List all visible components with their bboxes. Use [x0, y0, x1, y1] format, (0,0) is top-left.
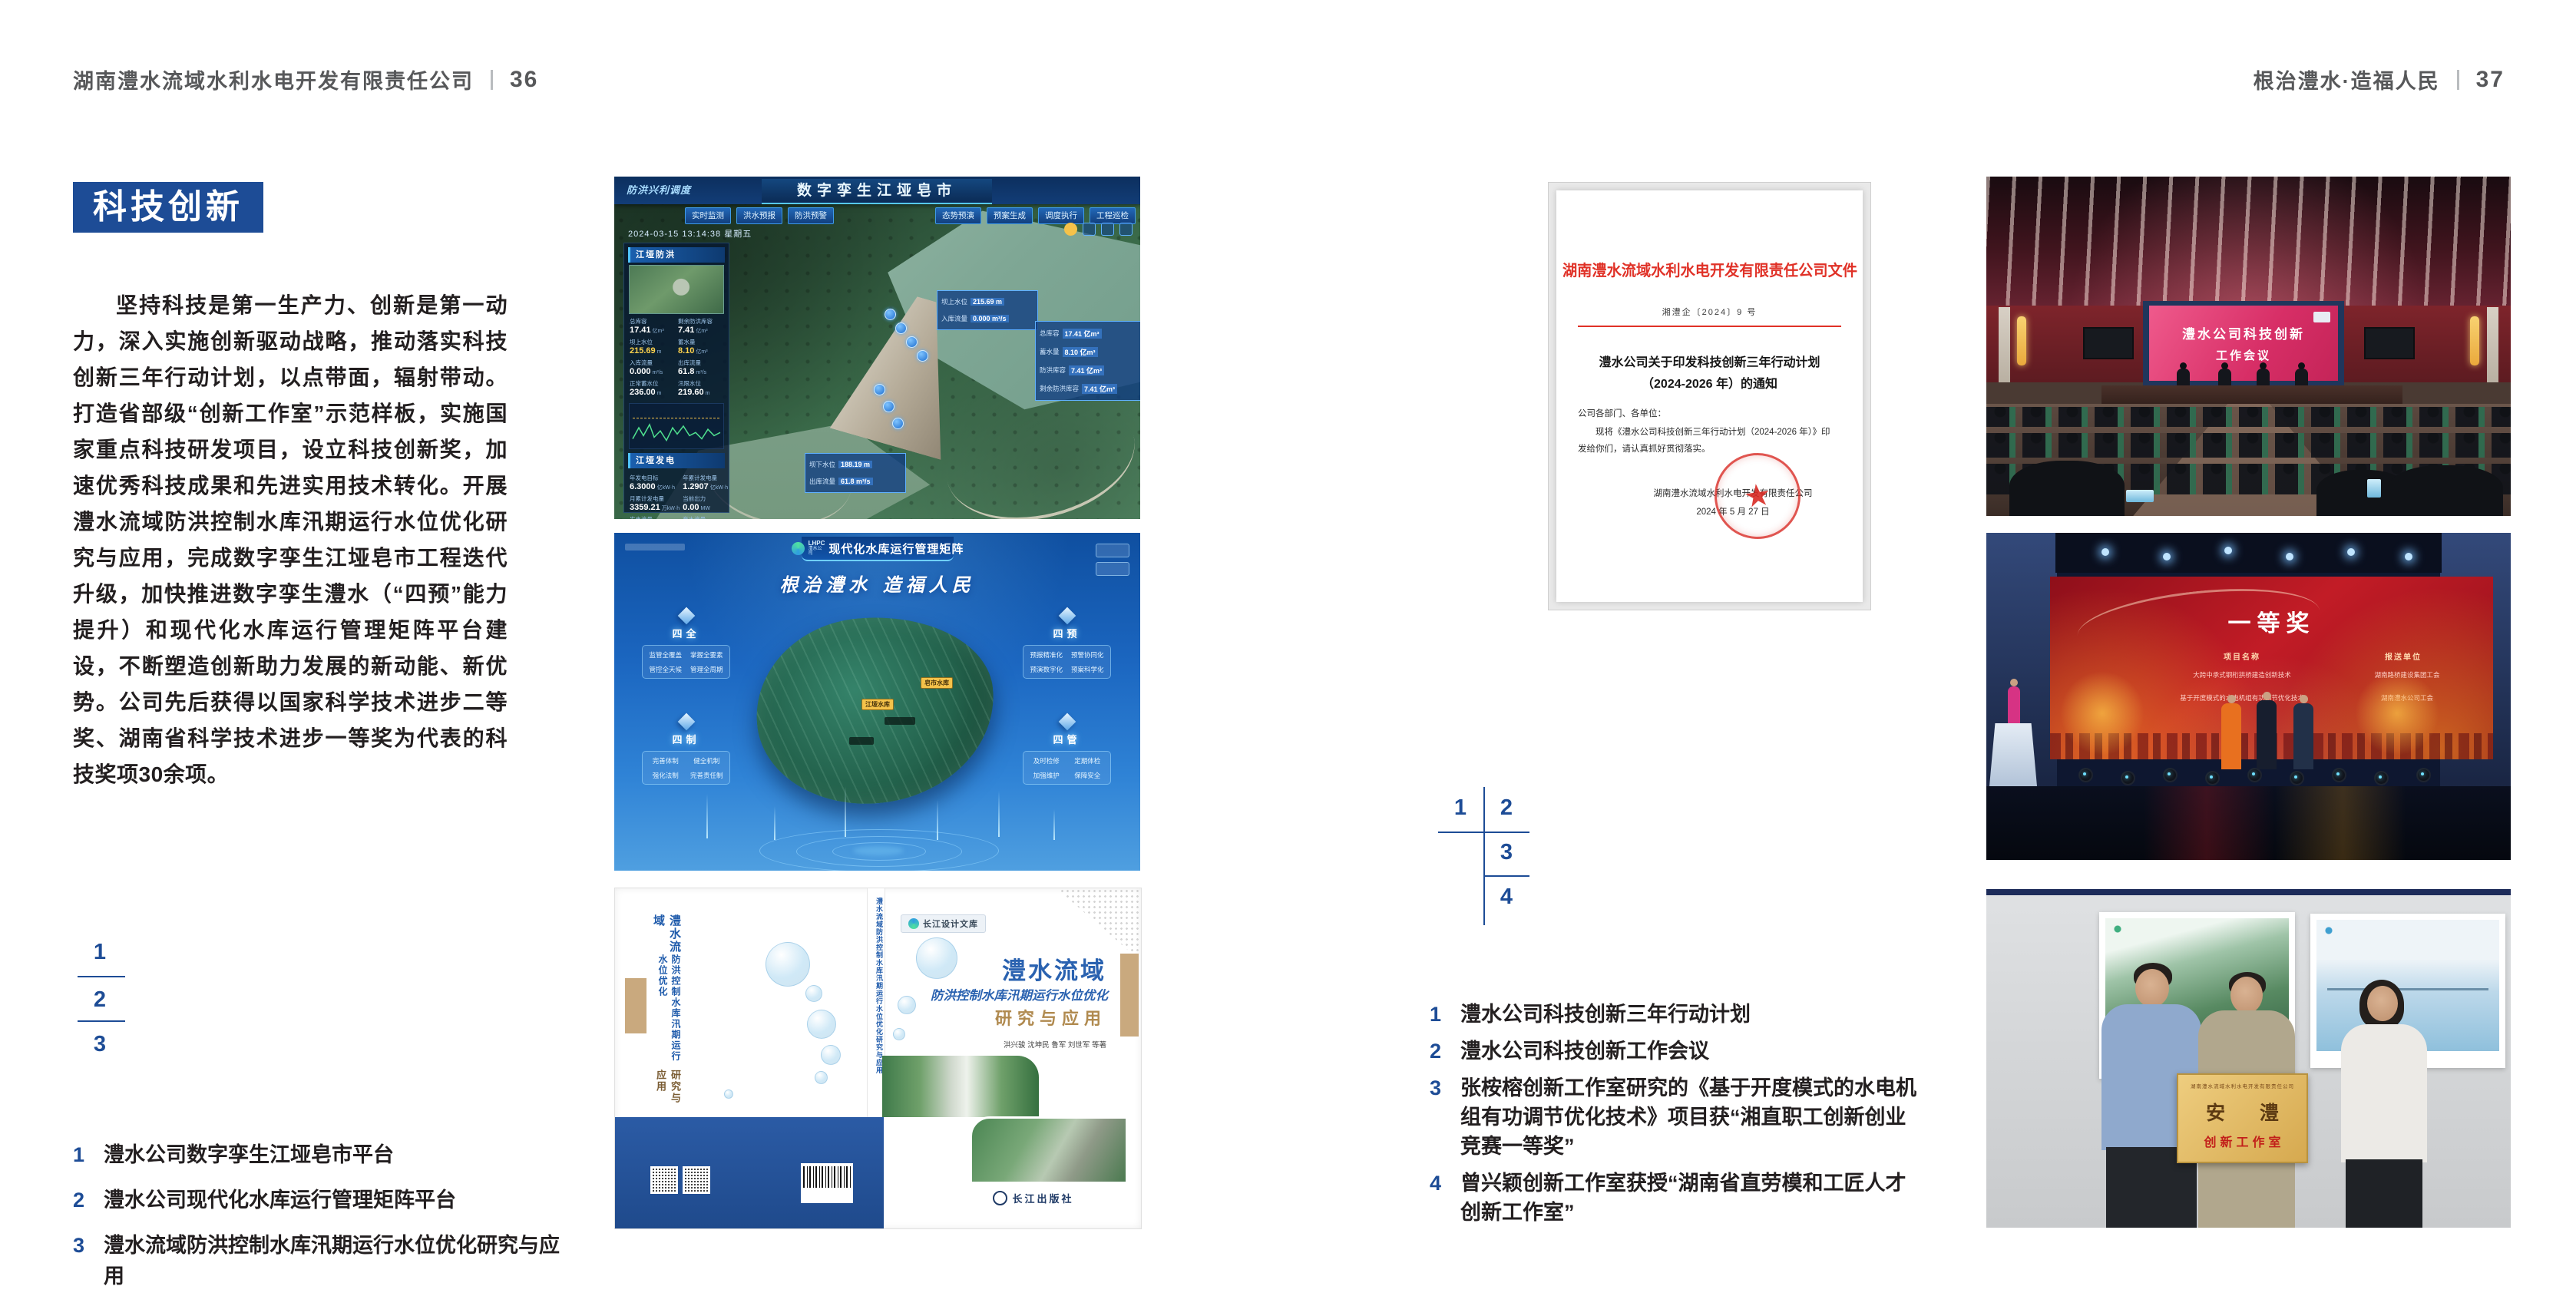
- audience-row: [1986, 433, 2511, 458]
- reflective-floor: [1986, 786, 2511, 860]
- presenter-suit: [2257, 700, 2277, 769]
- front-title-sub: 防洪控制水库汛期运行水位优化: [899, 985, 1108, 1003]
- speaker-silhouette: [2177, 369, 2190, 385]
- column-unit: 报送单位: [2334, 650, 2472, 662]
- document-red-title: 湖南澧水流域水利水电开发有限责任公司文件: [1562, 258, 1857, 280]
- caption-number: 2: [1430, 1037, 1460, 1066]
- photo-innovation-meeting: 澧水公司科技创新 工作会议: [1986, 177, 2511, 516]
- caption-item: 3 张桉榕创新工作室研究的《基于开度模式的水电机组有功调节优化技术》项目获“湘直…: [1430, 1073, 1936, 1161]
- front-title-tail: 研究与应用: [961, 1005, 1106, 1030]
- back-accent-block: [625, 978, 646, 1033]
- wall-lamp: [2470, 316, 2479, 365]
- settings-icon[interactable]: [1119, 223, 1133, 236]
- flag-icon: [1058, 607, 1076, 625]
- water-level-chart: [629, 403, 724, 449]
- panel-siyu: 四预 预报精准化预警协同化 预演数字化预案科学化: [1023, 610, 1111, 679]
- foreground-attendee: [2388, 465, 2503, 516]
- tab-flood-warning[interactable]: 防洪预警: [788, 207, 834, 224]
- platform-header: LHPC 澧水公司 现代化水库运行管理矩阵: [802, 537, 954, 561]
- water-bottle: [2367, 479, 2381, 498]
- dashboard-corner-label: 防洪兴利调度: [627, 182, 691, 197]
- back-cover-title: 澧水流域 防洪控制水库汛期运行水位优化 研究与应用: [646, 914, 683, 1114]
- stage-light: [2205, 771, 2220, 785]
- datetime-label: 2024-03-15 13:14:38 星期五: [628, 227, 752, 240]
- tab-group-left: 实时监测 洪水预报 防洪预警: [685, 207, 834, 224]
- speaker-silhouette: [2257, 369, 2270, 385]
- rostrum-table: [2101, 385, 2402, 404]
- project-name: 基于开度模式的水电机组有功调节优化技术: [2135, 693, 2349, 703]
- company-name: 湖南澧水流域水利水电开发有限责任公司: [73, 64, 474, 94]
- qr-code: [683, 1166, 710, 1194]
- series-badge: 长江设计文库: [901, 914, 986, 933]
- person-head: [2230, 977, 2263, 1013]
- platform-title: 现代化水库运行管理矩阵: [828, 541, 964, 557]
- wall-tv: [2364, 327, 2415, 359]
- light-pillar: [774, 806, 775, 840]
- screen-logo-icon: [2313, 312, 2330, 322]
- column-project: 项目名称: [2158, 650, 2326, 662]
- toolbar-icons: [1064, 223, 1133, 236]
- gate-marker[interactable]: [885, 309, 896, 320]
- stage-light: [2290, 771, 2304, 785]
- caption-item: 1 澧水公司数字孪生江垭皂市平台: [73, 1139, 564, 1170]
- panel-power-title: 江垭发电: [628, 453, 725, 468]
- caption-text: 张桉榕创新工作室研究的《基于开度模式的水电机组有功调节优化技术》项目获“湘直职工…: [1460, 1073, 1921, 1161]
- water-droplet: [815, 1071, 828, 1084]
- header-divider: [491, 70, 493, 90]
- caption-number: 2: [73, 1185, 104, 1215]
- key-divider-line: [1483, 787, 1485, 925]
- left-stats-panel: 江垭防洪 总库容17.41亿m³ 剩余防洪库容7.41亿m³ 坝上水位215.6…: [623, 243, 729, 513]
- panel-siquan: 四全 监管全覆盖掌握全要素 管控全天候管理全周期: [642, 610, 730, 679]
- callout-capacity: 总库容17.41 亿m³ 蓄水量8.10 亿m³ 防洪库容7.41 亿m³ 剩余…: [1035, 321, 1140, 401]
- radar-glow: [853, 846, 904, 855]
- document-page: 湖南澧水流域水利水电开发有限责任公司文件 湘澧企〔2024〕9 号 澧水公司关于…: [1556, 190, 1863, 602]
- header-divider: [2457, 70, 2459, 90]
- caption-number: 3: [73, 1230, 104, 1291]
- building-icon: [677, 713, 695, 731]
- body-paragraph: 坚持科技是第一生产力、创新是第一动力，深入实施创新驱动战略，推动落实科技创新三年…: [73, 287, 508, 792]
- key-number: 1: [1447, 795, 1474, 821]
- document-number: 湘澧企〔2024〕9 号: [1556, 306, 1863, 318]
- flood-stats-grid: 总库容17.41亿m³ 剩余防洪库容7.41亿m³ 坝上水位215.69m 蓄水…: [624, 314, 729, 402]
- project-name: 大跨中承式钢桁拱桥建造创新技术: [2135, 670, 2349, 679]
- speaker-silhouette: [2218, 369, 2231, 385]
- key-divider-line: [1483, 875, 1529, 877]
- lhpc-logo-text: LHPC 澧水公司: [809, 541, 825, 556]
- person-shirt-white: [2341, 1024, 2427, 1162]
- document-subject: 澧水公司关于印发科技创新三年行动计划: [1556, 352, 1863, 370]
- gear-icon: [1058, 713, 1076, 731]
- stage-light: [2332, 768, 2346, 782]
- light-pillar: [706, 794, 708, 838]
- audience-row: [1986, 407, 2511, 427]
- gate-marker[interactable]: [883, 401, 894, 412]
- tab-flood-forecast[interactable]: 洪水预报: [736, 207, 782, 224]
- map-tag-small[interactable]: [885, 717, 915, 725]
- stage-light: [2121, 771, 2135, 785]
- qr-code: [650, 1166, 678, 1194]
- wall-tv: [2083, 327, 2134, 359]
- audience-floor: [1986, 404, 2511, 516]
- captions-right: 1 澧水公司科技创新三年行动计划 2 澧水公司科技创新工作会议 3 张桉榕创新工…: [1430, 1000, 1936, 1235]
- golden-glow: [2355, 671, 2439, 755]
- person-head: [2367, 986, 2398, 1021]
- person-head: [2135, 969, 2169, 1007]
- basin-3d-map: [749, 607, 1002, 813]
- document-subject: （2024-2026 年）的通知: [1556, 373, 1863, 392]
- key-divider-line: [78, 976, 125, 977]
- tab-dispatch-execution[interactable]: 调度执行: [1038, 207, 1084, 224]
- front-title-main: 澧水流域: [964, 951, 1106, 986]
- stage-light: [2078, 768, 2093, 782]
- person-trousers: [2346, 1159, 2422, 1228]
- light-truss: [2055, 533, 2442, 573]
- caption-item: 2 澧水公司现代化水库运行管理矩阵平台: [73, 1185, 564, 1215]
- caption-text: 澧水公司科技创新工作会议: [1460, 1037, 1709, 1066]
- caption-text: 澧水公司数字孪生江垭皂市平台: [104, 1139, 394, 1170]
- datetime-placeholder: [625, 544, 685, 551]
- barcode: [801, 1163, 853, 1203]
- caption-item: 1 澧水公司科技创新三年行动计划: [1430, 1000, 1936, 1029]
- caption-item: 2 澧水公司科技创新工作会议: [1430, 1037, 1936, 1066]
- document-salutation: 公司各部门、各单位：: [1578, 407, 1666, 419]
- document-red-rule: [1578, 326, 1841, 327]
- key-number: 3: [86, 1032, 114, 1057]
- key-divider-line: [78, 1020, 125, 1022]
- captions-left: 1 澧水公司数字孪生江垭皂市平台 2 澧水公司现代化水库运行管理矩阵平台 3 澧…: [73, 1139, 564, 1306]
- section-title: 科技创新: [73, 182, 263, 233]
- bridge-line: [2327, 988, 2488, 990]
- gate-marker[interactable]: [906, 336, 918, 348]
- awardee-blue: [2293, 703, 2313, 769]
- fullscreen-button[interactable]: [1096, 544, 1129, 557]
- caption-text: 澧水公司科技创新三年行动计划: [1460, 1000, 1751, 1029]
- book-spread: 湖南澧水流域水利水电开发有限责任公司 36 根治澧水·造福人民 37 科技创新 …: [0, 0, 2576, 1306]
- wall-column: [2487, 307, 2498, 382]
- authors-line: 洪兴骏 沈坤民 鲁军 刘世军 等著: [976, 1039, 1106, 1050]
- golden-glow: [2060, 671, 2144, 755]
- key-number: 1: [86, 940, 114, 965]
- map-tag-small[interactable]: [849, 737, 874, 745]
- caption-number: 1: [73, 1139, 104, 1170]
- tab-plan-generation[interactable]: 预案生成: [987, 207, 1033, 224]
- awardee-orange: [2221, 703, 2241, 769]
- motto-text: 根治澧水·造福人民: [2254, 64, 2440, 94]
- monitor-icon: [677, 607, 695, 625]
- key-number: 3: [1493, 840, 1520, 865]
- caption-number: 4: [1430, 1169, 1460, 1227]
- caption-number: 1: [1430, 1000, 1460, 1029]
- locate-icon[interactable]: [1101, 223, 1114, 236]
- caption-item: 4 曾兴颖创新工作室获授“湖南省直劳模和工匠人才创新工作室”: [1430, 1169, 1936, 1227]
- ceiling: [1986, 177, 2511, 306]
- spotlight: [2405, 553, 2412, 560]
- foreground-attendee: [2009, 461, 2125, 516]
- caption-text: 曾兴颖创新工作室获授“湖南省直劳模和工匠人才创新工作室”: [1460, 1169, 1921, 1227]
- ceiling-strip: [1986, 889, 2511, 895]
- panel-sizhi: 四制 完善体制健全机制 强化法制完善责任制: [642, 716, 730, 785]
- slogan-calligraphy: 根治澧水 造福人民: [614, 570, 1140, 597]
- user-icon[interactable]: [1064, 223, 1077, 236]
- page-number-left: 36: [510, 67, 538, 93]
- caption-text: 澧水流域防洪控制水库汛期运行水位优化研究与应用: [104, 1230, 564, 1291]
- spotlight: [2286, 553, 2293, 560]
- speaker-silhouette: [2295, 369, 2308, 385]
- page-header-right: 根治澧水·造福人民 37: [2254, 64, 2505, 94]
- wall-column: [1999, 307, 2010, 382]
- document-body-line: 现将《澧水公司科技创新三年行动计划（2024-2026 年）》印: [1578, 425, 1848, 438]
- photo-award-ceremony: 一等奖 项目名称 报送单位 大跨中承式钢桁拱桥建造创新技术 基于开度模式的水电机…: [1986, 533, 2511, 860]
- water-droplet: [724, 1089, 733, 1099]
- screen-frame: 澧水公司科技创新 工作会议: [2143, 301, 2344, 385]
- key-number: 2: [86, 987, 114, 1013]
- publisher-logo-icon: [993, 1191, 1007, 1205]
- spotlight: [2101, 548, 2109, 556]
- stage-light: [2374, 771, 2389, 785]
- first-prize-title: 一等奖: [2050, 604, 2493, 638]
- wall-lamp: [2017, 316, 2026, 365]
- water-droplet: [916, 937, 957, 979]
- map-tag-zaoshi[interactable]: 皂市水库: [921, 677, 953, 689]
- key-number: 2: [1493, 795, 1520, 821]
- document-body-line: 发给你们，请认真抓好贯彻落实。: [1578, 442, 1848, 455]
- figure-matrix-platform: LHPC 澧水公司 现代化水库运行管理矩阵 根治澧水 造福人民 皂市水库 江垭水…: [614, 533, 1140, 871]
- water-droplet: [805, 985, 822, 1002]
- tissue-box: [2126, 490, 2154, 502]
- publisher-mark: 长江出版社: [945, 1191, 1122, 1205]
- tab-project-inspection[interactable]: 工程巡检: [1090, 207, 1136, 224]
- page-header-left: 湖南澧水流域水利水电开发有限责任公司 36: [73, 64, 538, 94]
- spotlight: [2347, 548, 2355, 556]
- dam-photo: [970, 1116, 1128, 1184]
- host-podium: [1989, 723, 2037, 786]
- map-tag-jiangya[interactable]: 江垭水库: [861, 699, 894, 710]
- stage-light: [2416, 768, 2431, 782]
- page-number-right: 37: [2476, 67, 2505, 93]
- gate-marker[interactable]: [895, 322, 907, 334]
- light-pillar: [998, 791, 1000, 837]
- panel-flood-title: 江垭防洪: [628, 247, 725, 263]
- gate-marker[interactable]: [917, 350, 928, 362]
- water-droplet: [893, 1028, 905, 1040]
- gorge-photo: [882, 1056, 1039, 1117]
- tab-group-right: 态势预演 预案生成 调度执行 工程巡检: [935, 207, 1136, 224]
- figure-digital-twin-platform: 数字孪生江垭皂市 防洪兴利调度 实时监测 洪水预报 防洪预警 态势预演 预案生成…: [614, 177, 1140, 519]
- callout-upstream: 坝上水位215.69 m 入库流量0.000 m³/s: [937, 290, 1038, 330]
- callout-downstream: 坝下水位188.19 m 出库流量61.8 m³/s: [805, 453, 906, 493]
- water-droplet: [807, 1010, 836, 1039]
- layers-icon[interactable]: [1083, 223, 1096, 236]
- light-pillar: [937, 800, 938, 840]
- caption-item: 3 澧水流域防洪控制水库汛期运行水位优化研究与应用: [73, 1230, 564, 1291]
- key-divider-line: [1438, 832, 1529, 833]
- figure-book-cover: 澧水流域 防洪控制水库汛期运行水位优化 研究与应用 澧水流域防洪控制水库汛期运行…: [614, 888, 1142, 1229]
- dam-thumbnail: [629, 265, 724, 314]
- official-seal: ★: [1709, 448, 1806, 544]
- power-stats-grid: 年发电目标6.3000亿kW·h 年累计发电量1.2907亿kW·h 月累计发电…: [624, 471, 729, 519]
- front-accent-block: [1120, 954, 1139, 1037]
- dashboard-title: 数字孪生江垭皂市: [762, 179, 992, 204]
- caption-text: 澧水公司现代化水库运行管理矩阵平台: [104, 1185, 456, 1215]
- halftone-corner: [1049, 888, 1141, 961]
- spotlight: [2163, 553, 2171, 560]
- tab-situation-rehearsal[interactable]: 态势预演: [935, 207, 981, 224]
- caption-number: 3: [1430, 1073, 1460, 1161]
- tab-realtime-monitor[interactable]: 实时监测: [685, 207, 731, 224]
- spotlight: [2224, 547, 2232, 554]
- document-photo: 湖南澧水流域水利水电开发有限责任公司文件 湘澧企〔2024〕9 号 澧水公司关于…: [1548, 182, 1871, 610]
- gate-marker[interactable]: [874, 384, 885, 395]
- series-logo-icon: [908, 918, 919, 929]
- lhpc-logo-icon: [792, 542, 805, 555]
- gate-marker[interactable]: [892, 418, 904, 429]
- stage-light: [2247, 768, 2262, 782]
- panel-siguan: 四管 及时检修定期体检 加强维护保障安全: [1023, 716, 1111, 785]
- key-number: 4: [1493, 884, 1520, 910]
- water-droplet: [821, 1045, 841, 1065]
- stage-light: [2163, 768, 2178, 782]
- water-droplet: [766, 942, 810, 987]
- photo-workshop-plaque: 湖南澧水流域水利水电开发有限责任公司 安 澧 创新工作室: [1986, 889, 2511, 1228]
- light-pillar: [845, 786, 846, 837]
- workshop-plaque: 湖南澧水流域水利水电开发有限责任公司 安 澧 创新工作室: [2177, 1073, 2308, 1163]
- light-pillar: [1053, 809, 1055, 840]
